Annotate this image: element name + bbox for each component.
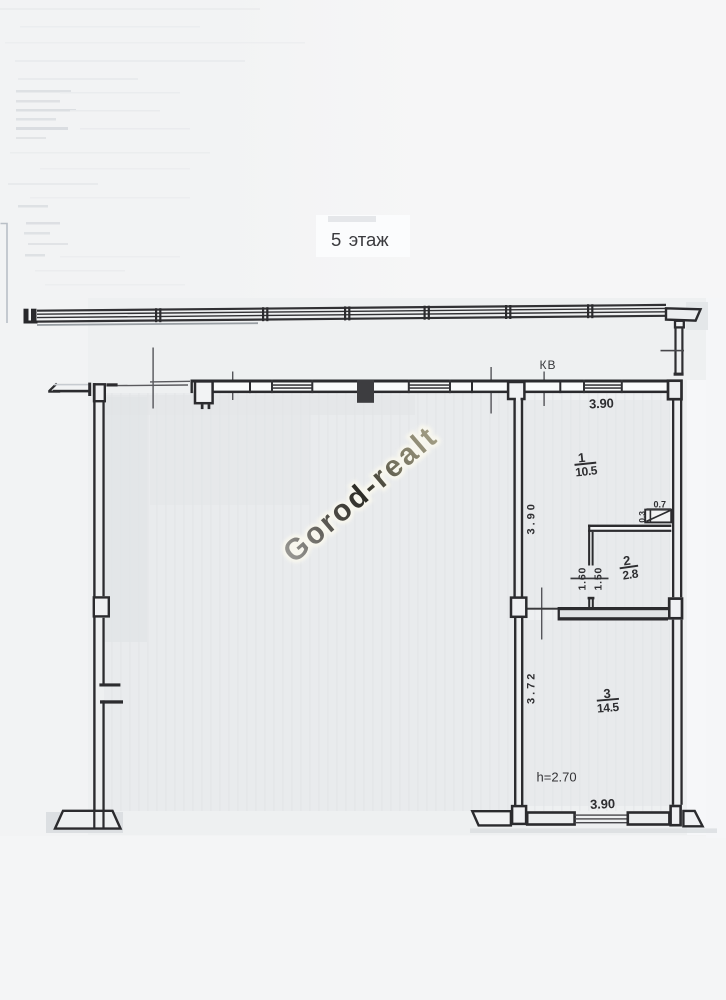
svg-text:14.5: 14.5	[596, 700, 620, 716]
svg-text:1.50: 1.50	[592, 567, 604, 591]
svg-text:КВ: КВ	[540, 358, 557, 372]
svg-text:h=2.70: h=2.70	[537, 770, 577, 785]
svg-text:3.90: 3.90	[589, 395, 614, 411]
svg-text:10.5: 10.5	[575, 463, 599, 479]
svg-text:0.7: 0.7	[654, 500, 667, 510]
svg-text:3.72: 3.72	[526, 671, 538, 704]
svg-text:2.8: 2.8	[622, 566, 640, 582]
svg-text:0.3: 0.3	[637, 511, 647, 523]
svg-text:3.90: 3.90	[526, 501, 538, 534]
svg-text:5 этаж: 5 этаж	[331, 229, 389, 250]
svg-text:3.90: 3.90	[590, 796, 615, 812]
svg-text:1.60: 1.60	[576, 567, 588, 591]
